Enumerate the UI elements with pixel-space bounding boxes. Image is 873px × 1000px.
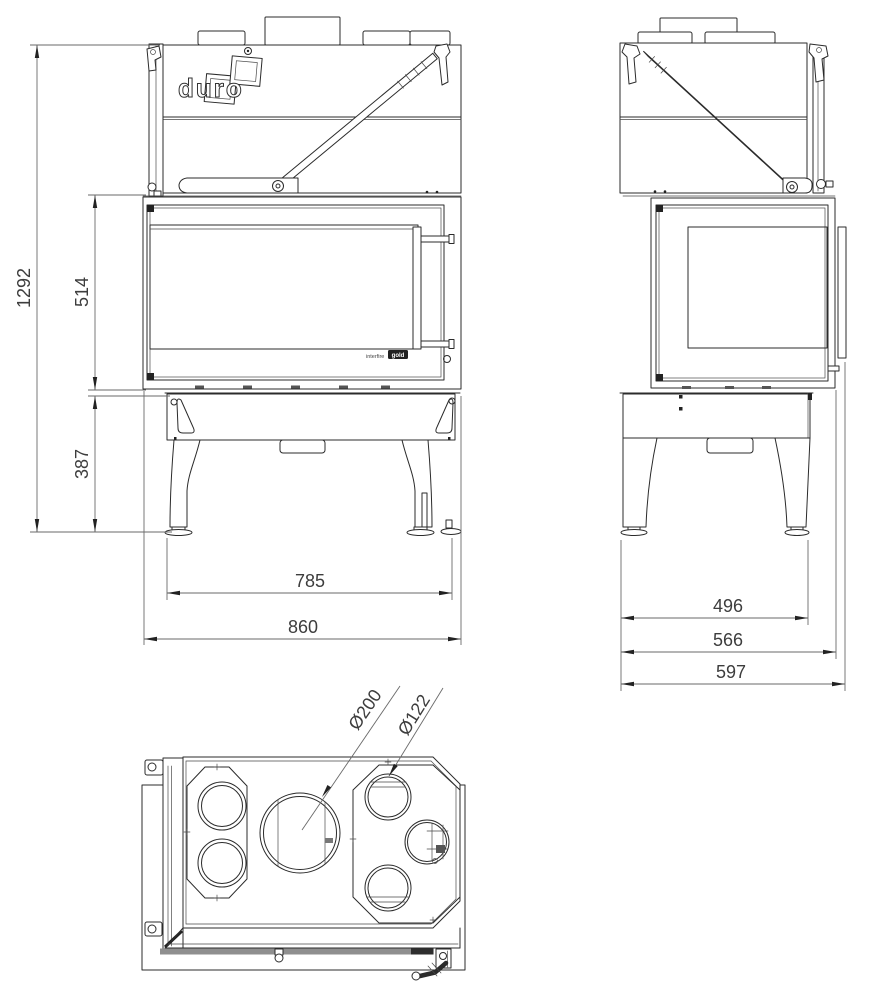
dim-body-depth: 566 bbox=[713, 630, 743, 650]
side-top-pipes bbox=[638, 18, 775, 44]
side-base bbox=[620, 393, 813, 536]
front-base bbox=[165, 393, 461, 536]
front-left-pillar bbox=[147, 44, 163, 196]
dim-total-height: 1292 bbox=[14, 268, 34, 308]
dim-flue-diameter: Ø200 bbox=[344, 686, 385, 734]
front-left-leg bbox=[170, 440, 200, 527]
svg-text:interfire: interfire bbox=[366, 354, 384, 360]
dim-door-height: 514 bbox=[72, 277, 92, 307]
front-door: interfire gold bbox=[143, 197, 461, 389]
dim-feet-span: 785 bbox=[295, 571, 325, 591]
side-right-pillar bbox=[809, 44, 833, 193]
dim-duct-diameter: Ø122 bbox=[394, 691, 434, 739]
drawing-canvas: duro bbox=[0, 0, 873, 1000]
side-door bbox=[651, 198, 846, 389]
side-front-leg bbox=[623, 438, 657, 527]
side-lever-pivot bbox=[787, 182, 798, 193]
dim-total-depth: 597 bbox=[716, 662, 746, 682]
brand-logo-text: duro bbox=[178, 73, 244, 103]
front-top-pipes bbox=[198, 17, 450, 45]
side-body-panel bbox=[620, 43, 807, 193]
svg-text:gold: gold bbox=[392, 353, 405, 359]
side-view: 496 566 597 bbox=[620, 18, 846, 691]
dim-base-height: 387 bbox=[72, 449, 92, 479]
side-rear-leg bbox=[775, 438, 810, 527]
fireplace-technical-drawing: duro bbox=[0, 0, 873, 1000]
dim-feet-depth: 496 bbox=[713, 596, 743, 616]
side-feet bbox=[621, 527, 809, 536]
lever-pivot bbox=[273, 181, 284, 192]
top-view: Ø200 Ø122 bbox=[142, 686, 465, 980]
front-view: duro bbox=[14, 17, 461, 645]
side-door-handle bbox=[838, 227, 846, 358]
dim-total-width: 860 bbox=[288, 617, 318, 637]
